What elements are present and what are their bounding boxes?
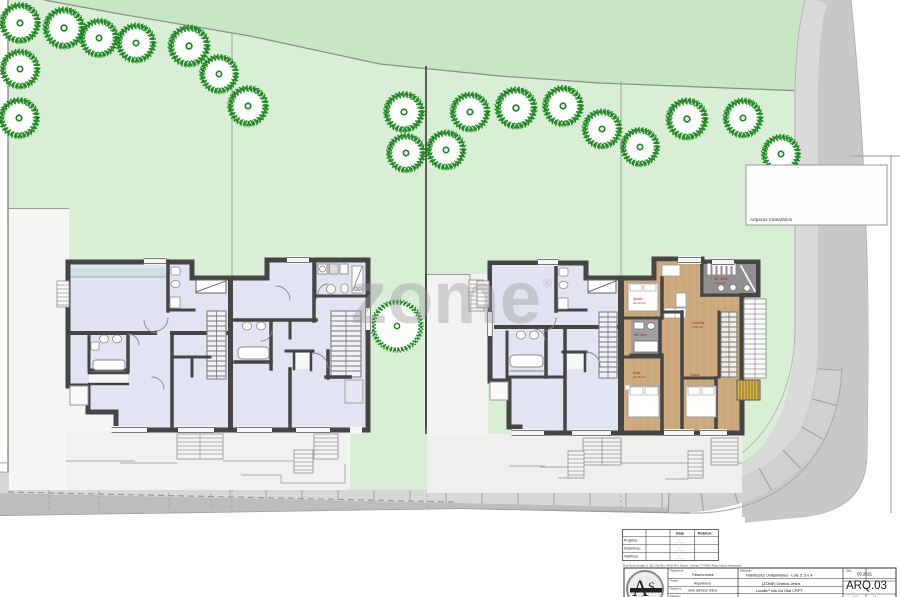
svg-text:Projetou: Projetou <box>624 539 637 543</box>
svg-text:Rubrica: Rubrica <box>698 532 712 536</box>
svg-text:12.35 m2: 12.35 m2 <box>633 375 646 379</box>
svg-text:Arquivos Camarários: Arquivos Camarários <box>750 217 793 222</box>
svg-text:Arquitetura: Arquitetura <box>694 582 711 586</box>
svg-text:Data: Data <box>846 569 852 573</box>
svg-text:___/___: ___/___ <box>673 547 686 551</box>
svg-text:Localid.ª Vila Cid Cital CP/PT: Localid.ª Vila Cid Cital CP/PT <box>756 589 804 593</box>
svg-text:___/___: ___/___ <box>673 555 686 559</box>
svg-text:zome: zome <box>350 256 541 339</box>
svg-text:Habitações Unifamiliares - Lot: Habitações Unifamiliares - Lote 2, 3 e 4 <box>746 573 812 577</box>
svg-text:4.50 m2: 4.50 m2 <box>692 325 703 329</box>
svg-text:ARQ.03: ARQ.03 <box>846 580 887 592</box>
svg-text:Habitação: Habitação <box>740 569 752 573</box>
svg-text:Rua Nova Granja, C.912, Via Fl: Rua Nova Granja, C.912, Via Flor, 3450-9… <box>623 564 742 568</box>
svg-text:obra adresse única: obra adresse única <box>688 589 717 593</box>
svg-text:4.20 m2: 4.20 m2 <box>714 281 725 285</box>
svg-text:Data: Data <box>676 532 685 536</box>
svg-text:Verificou: Verificou <box>624 555 638 559</box>
svg-text:Palavra-chave: Palavra-chave <box>692 573 714 577</box>
svg-text:WC Serv.: WC Serv. <box>634 333 648 337</box>
svg-text:09.2021: 09.2021 <box>857 572 873 577</box>
svg-text:Quarto: Quarto <box>690 373 700 377</box>
svg-text:Desenhou: Desenhou <box>624 547 640 551</box>
svg-text:___/___: ___/___ <box>673 539 686 543</box>
svg-text:(ZOME) Cristina Jesus: (ZOME) Cristina Jesus <box>762 582 800 586</box>
svg-text:Requerente: Requerente <box>670 569 684 573</box>
svg-text:Projeto: Projeto <box>670 579 679 583</box>
svg-text:Requerim.: Requerim. <box>670 587 682 591</box>
svg-text:®: ® <box>543 276 552 290</box>
svg-text:10.10 m2: 10.10 m2 <box>633 301 646 305</box>
